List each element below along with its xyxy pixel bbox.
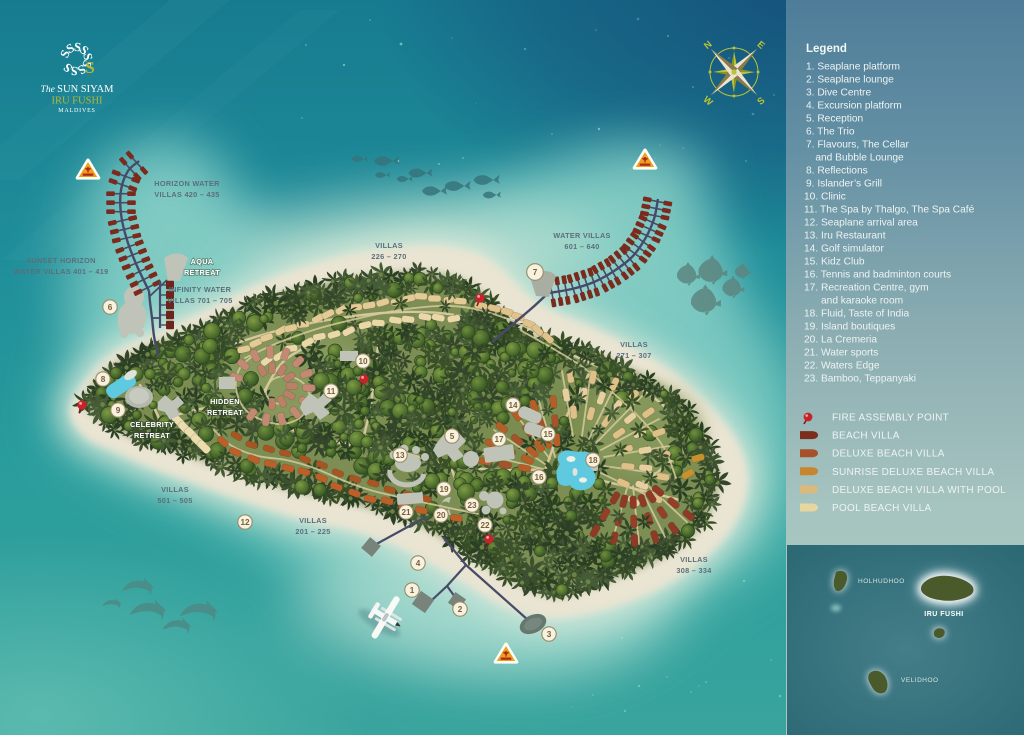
svg-text:5: 5 (450, 432, 455, 441)
svg-text:HIDDEN: HIDDEN (210, 397, 240, 406)
svg-text:The SUN SIYAM: The SUN SIYAM (41, 84, 115, 95)
svg-text:VILLAS: VILLAS (680, 555, 708, 564)
svg-text:18: 18 (588, 456, 598, 465)
svg-text:FIRE ASSEMBLY POINT: FIRE ASSEMBLY POINT (832, 413, 949, 424)
svg-text:HOLHUDHOO: HOLHUDHOO (858, 578, 905, 585)
svg-text:RETREAT: RETREAT (207, 408, 243, 417)
svg-text:and karaoke room: and karaoke room (804, 296, 903, 307)
svg-text:17: 17 (494, 435, 504, 444)
svg-text:4: 4 (416, 559, 421, 568)
svg-text:2: 2 (458, 605, 463, 614)
svg-text:20. La Cremeria: 20. La Cremeria (804, 335, 877, 346)
svg-text:6: 6 (108, 303, 113, 312)
svg-text:VILLAS 701 – 705: VILLAS 701 – 705 (167, 296, 232, 305)
svg-text:226 – 270: 226 – 270 (371, 252, 406, 261)
svg-text:VILLAS: VILLAS (620, 340, 648, 349)
svg-text:9. Islander’s Grill: 9. Islander’s Grill (806, 179, 882, 190)
svg-text:MALDIVES: MALDIVES (58, 108, 95, 114)
svg-text:14. Golf simulator: 14. Golf simulator (804, 244, 884, 255)
svg-text:9: 9 (116, 406, 121, 415)
svg-text:IRU FUSHI: IRU FUSHI (924, 611, 964, 618)
svg-text:7. Flavours, The Cellar: 7. Flavours, The Cellar (806, 140, 909, 151)
svg-text:2. Seaplane lounge: 2. Seaplane lounge (806, 75, 894, 86)
svg-text:IRU FUSHI: IRU FUSHI (51, 96, 103, 107)
svg-text:13. Iru Restaurant: 13. Iru Restaurant (804, 231, 886, 242)
svg-text:1: 1 (410, 586, 415, 595)
svg-text:10: 10 (358, 357, 368, 366)
svg-text:15. Kidz Club: 15. Kidz Club (804, 257, 865, 268)
svg-text:23: 23 (467, 501, 477, 510)
svg-text:12. Seaplane arrival area: 12. Seaplane arrival area (804, 218, 918, 229)
svg-text:16. Tennis and badminton court: 16. Tennis and badminton courts (804, 270, 951, 281)
svg-text:4. Excursion platform: 4. Excursion platform (806, 101, 902, 112)
svg-text:8: 8 (101, 375, 106, 384)
svg-text:15: 15 (543, 430, 553, 439)
svg-text:22: 22 (480, 521, 490, 530)
svg-text:17. Recreation Centre, gym: 17. Recreation Centre, gym (804, 283, 929, 294)
svg-text:6. The Trio: 6. The Trio (806, 127, 855, 138)
svg-text:23. Bamboo, Teppanyaki: 23. Bamboo, Teppanyaki (804, 374, 916, 385)
svg-text:3: 3 (547, 630, 552, 639)
svg-text:Legend: Legend (806, 43, 847, 55)
svg-text:RETREAT: RETREAT (134, 431, 170, 440)
svg-text:19. Island boutiques: 19. Island boutiques (804, 322, 895, 333)
svg-text:INFINITY WATER: INFINITY WATER (169, 285, 232, 294)
svg-text:7: 7 (533, 268, 538, 277)
svg-text:12: 12 (240, 518, 250, 527)
svg-text:21. Water sports: 21. Water sports (804, 348, 878, 359)
svg-text:501 – 505: 501 – 505 (157, 496, 192, 505)
svg-text:14: 14 (508, 401, 518, 410)
svg-text:201 – 225: 201 – 225 (295, 527, 330, 536)
svg-text:DELUXE BEACH VILLA: DELUXE BEACH VILLA (832, 449, 945, 460)
svg-text:VILLAS 420 – 435: VILLAS 420 – 435 (154, 190, 219, 199)
svg-text:308 – 334: 308 – 334 (676, 566, 712, 575)
svg-text:VELIDHOO: VELIDHOO (901, 677, 939, 684)
svg-text:WATER VILLAS 401 – 419: WATER VILLAS 401 – 419 (14, 267, 109, 276)
svg-text:POOL BEACH VILLA: POOL BEACH VILLA (832, 503, 931, 514)
svg-text:5. Reception: 5. Reception (806, 114, 863, 125)
svg-text:SUNRISE DELUXE BEACH VILLA: SUNRISE DELUXE BEACH VILLA (832, 467, 994, 478)
svg-text:HORIZON WATER: HORIZON WATER (154, 179, 220, 188)
svg-text:11. The Spa by Thalgo, The Spa: 11. The Spa by Thalgo, The Spa Café (804, 205, 975, 216)
svg-text:AQUA: AQUA (191, 257, 214, 266)
svg-text:8. Reflections: 8. Reflections (806, 166, 868, 177)
svg-text:CELEBRITY: CELEBRITY (130, 420, 174, 429)
svg-text:3. Dive Centre: 3. Dive Centre (806, 88, 871, 99)
svg-text:20: 20 (436, 511, 446, 520)
svg-text:601 – 640: 601 – 640 (564, 242, 599, 251)
svg-text:16: 16 (534, 473, 544, 482)
svg-text:22. Waters Edge: 22. Waters Edge (804, 361, 880, 372)
svg-text:and Bubble Lounge: and Bubble Lounge (804, 153, 904, 164)
svg-text:21: 21 (401, 508, 411, 517)
svg-text:BEACH VILLA: BEACH VILLA (832, 431, 900, 442)
svg-text:13: 13 (395, 451, 405, 460)
svg-text:1. Seaplane platform: 1. Seaplane platform (806, 62, 900, 73)
svg-text:10. Clinic: 10. Clinic (804, 192, 846, 203)
svg-text:271 – 307: 271 – 307 (616, 351, 651, 360)
svg-text:19: 19 (439, 485, 449, 494)
svg-text:RETREAT: RETREAT (184, 268, 220, 277)
svg-text:S: S (85, 58, 94, 77)
svg-text:VILLAS: VILLAS (375, 241, 403, 250)
svg-text:11: 11 (327, 387, 336, 396)
svg-text:SUNSET HORIZON: SUNSET HORIZON (26, 256, 95, 265)
svg-text:DELUXE BEACH VILLA WITH POOL: DELUXE BEACH VILLA WITH POOL (832, 485, 1006, 496)
svg-text:VILLAS: VILLAS (299, 516, 327, 525)
svg-text:18. Fluid, Taste of India: 18. Fluid, Taste of India (804, 309, 909, 320)
svg-text:WATER VILLAS: WATER VILLAS (553, 231, 610, 240)
svg-text:VILLAS: VILLAS (161, 485, 189, 494)
